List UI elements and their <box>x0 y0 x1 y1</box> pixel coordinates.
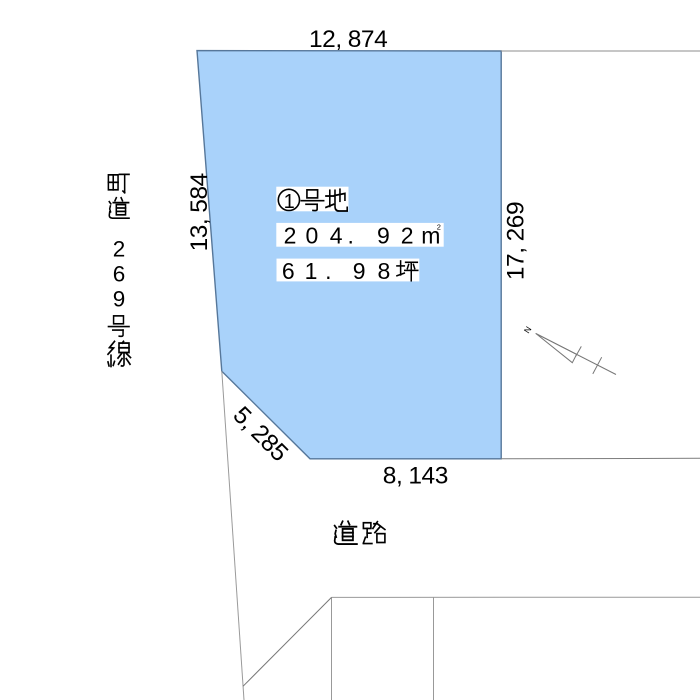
svg-text:2: 2 <box>401 223 414 249</box>
svg-text:4: 4 <box>330 223 343 249</box>
svg-text:9: 9 <box>353 258 366 284</box>
svg-text:17,269: 17,269 <box>503 202 530 280</box>
svg-text:2: 2 <box>284 223 297 249</box>
svg-text:1: 1 <box>305 258 318 284</box>
svg-text:1: 1 <box>284 191 295 213</box>
svg-text:0: 0 <box>306 223 319 249</box>
svg-text:6: 6 <box>282 258 295 284</box>
svg-text:8,143: 8,143 <box>383 462 448 489</box>
svg-text:2: 2 <box>437 223 441 232</box>
svg-text:2: 2 <box>113 236 126 261</box>
svg-text:13,584: 13,584 <box>186 173 213 251</box>
svg-text:.: . <box>325 258 331 284</box>
svg-text:12,874: 12,874 <box>309 26 387 53</box>
svg-text:9: 9 <box>113 287 126 312</box>
svg-text:8: 8 <box>378 258 391 284</box>
svg-text:.: . <box>348 223 354 249</box>
svg-text:9: 9 <box>377 223 390 249</box>
svg-text:N: N <box>522 325 534 336</box>
svg-text:6: 6 <box>113 262 126 287</box>
